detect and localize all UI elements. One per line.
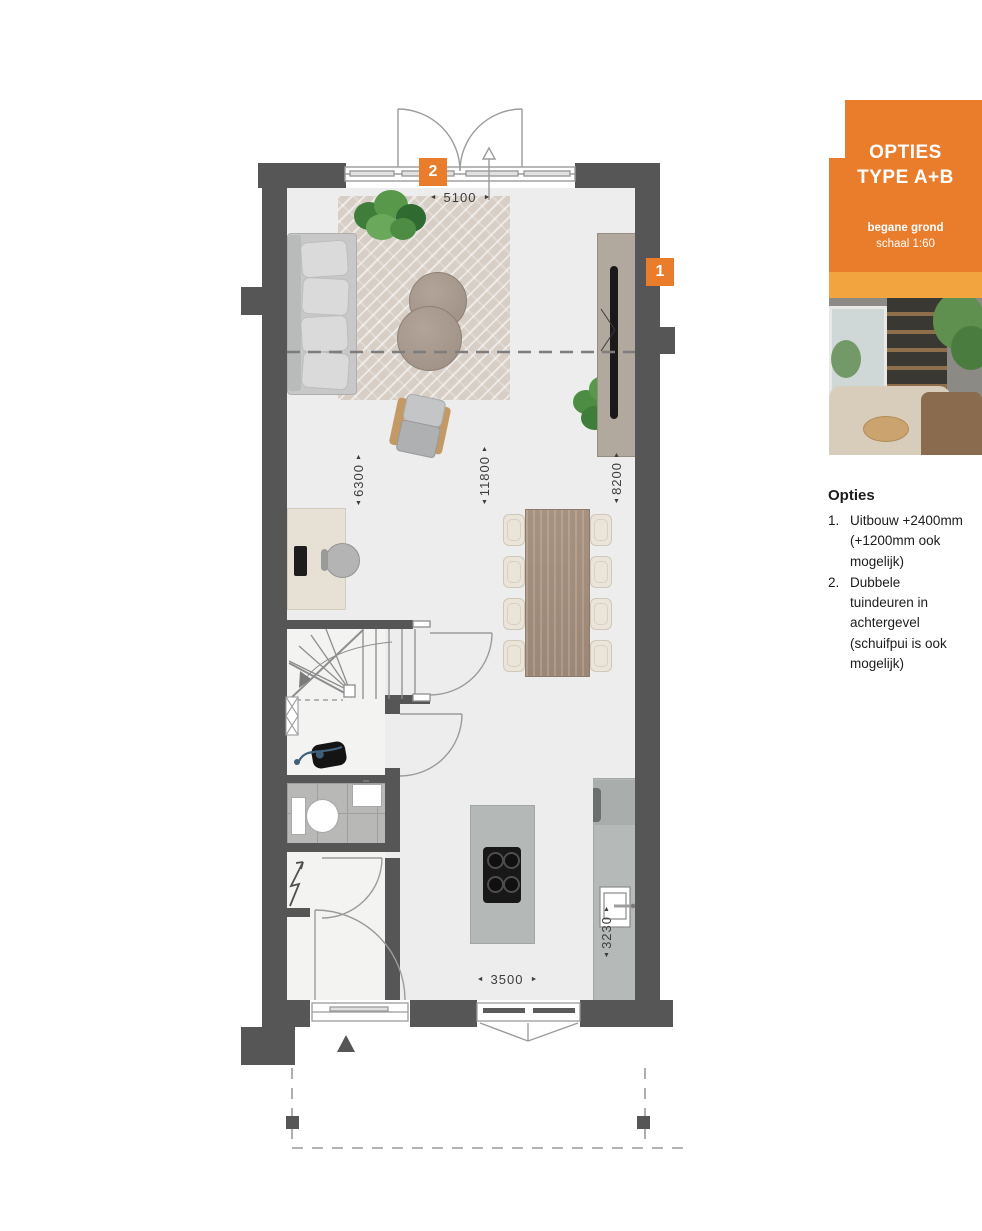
arrow-down-icon: ▼: [355, 500, 362, 507]
interior-photo: [829, 298, 982, 455]
duct-symbol: [286, 697, 298, 735]
door-swing-arcs: [315, 633, 492, 1000]
arrow-down-icon: ▼: [603, 952, 610, 959]
tv-stand-legs: [601, 309, 615, 351]
stairs-linework: [287, 621, 430, 701]
photo-throw: [921, 392, 982, 455]
entrance-arrow: [337, 1035, 355, 1052]
note-item-2: 2. Dubbele tuindeuren in achtergevel (sc…: [828, 573, 966, 674]
arrow-up-icon: ▲: [481, 446, 488, 453]
bottom-window: [477, 1003, 580, 1041]
dimension-3500: ◄ 3500 ►: [457, 972, 557, 987]
dimension-5100: ◄ 5100 ►: [410, 190, 510, 205]
arrow-up-icon: ▲: [603, 906, 610, 913]
card-subtitle: begane grond schaal 1:60: [829, 221, 982, 252]
vacuum-hose: [294, 747, 342, 765]
dimension-11800: ▲ 11800 ▼: [477, 446, 492, 506]
arrow-down-icon: ▼: [481, 499, 488, 506]
garden-doors-linework: [345, 109, 575, 200]
lightning-bolt-symbol: [290, 862, 303, 906]
arrow-right-icon: ►: [483, 194, 490, 201]
arrow-left-icon: ◄: [477, 976, 484, 983]
note-item-1: 1. Uitbouw +2400mm (+1200mm ook mogelijk…: [828, 511, 966, 572]
photo-coffee-table: [863, 416, 909, 442]
property-line-dashed: [292, 1068, 688, 1148]
arrow-right-icon: ►: [530, 976, 537, 983]
arrow-up-icon: ▲: [613, 452, 620, 459]
option-marker-1: 1: [646, 258, 674, 286]
dimension-3230: ▲ 3230 ▼: [599, 906, 614, 959]
notes-heading: Opties: [828, 487, 966, 504]
floorplan-page: ◄ 5100 ► ▲ 6300 ▼ ▲ 11800 ▼ ▲ 8200 ▼ ▲ 3…: [0, 0, 982, 1231]
options-notes: Opties 1. Uitbouw +2400mm (+1200mm ook m…: [828, 487, 966, 675]
terrace-posts: [286, 1116, 650, 1129]
arrow-down-icon: ▼: [613, 498, 620, 505]
photo-plant: [951, 326, 982, 370]
card-title: OPTIES TYPE A+B: [829, 140, 982, 190]
dimension-8200: ▲ 8200 ▼: [609, 452, 624, 505]
options-card-strip: [829, 272, 982, 298]
photo-greenery: [831, 340, 861, 378]
option-marker-2: 2: [419, 158, 447, 186]
dimension-6300: ▲ 6300 ▼: [351, 454, 366, 507]
arrow-up-icon: ▲: [355, 454, 362, 461]
arrow-left-icon: ◄: [430, 194, 437, 201]
front-door-sill: [312, 1003, 408, 1021]
